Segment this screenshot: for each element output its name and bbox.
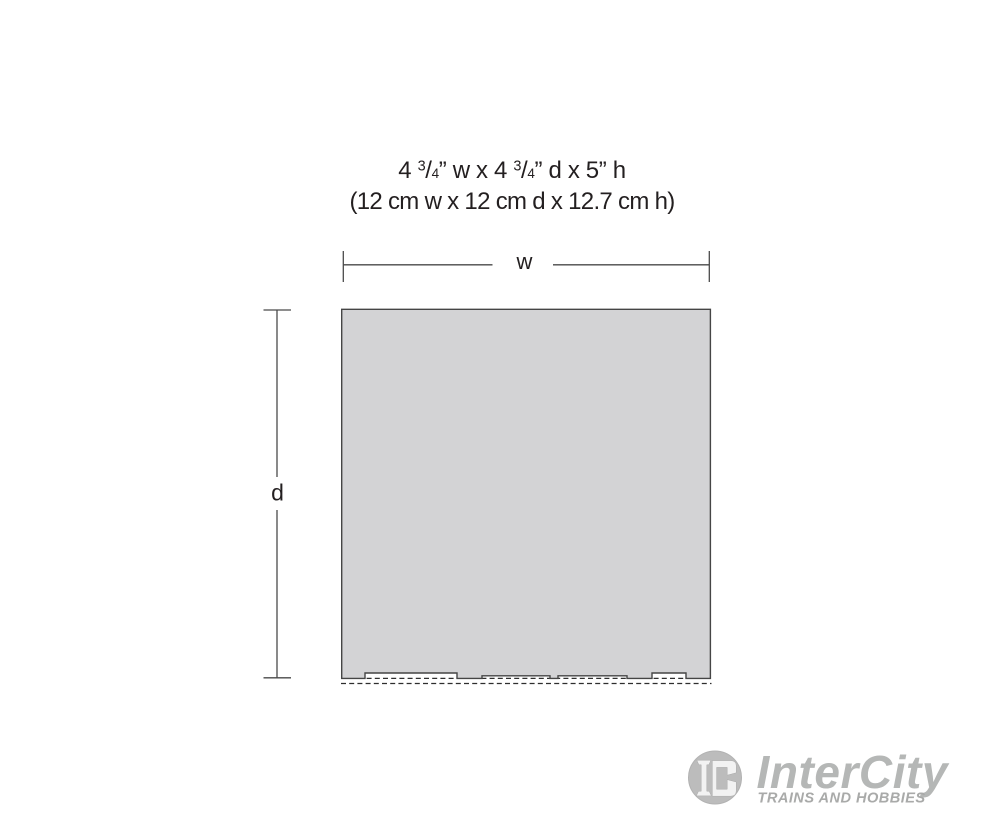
svg-text:(12 cm w x 12 cm d x 12.7 cm h: (12 cm w x 12 cm d x 12.7 cm h) xyxy=(349,188,674,215)
svg-text:w: w xyxy=(516,249,533,274)
svg-text:TRAINS AND HOBBIES: TRAINS AND HOBBIES xyxy=(758,791,926,807)
svg-text:d: d xyxy=(271,480,284,506)
svg-text:4 3/4” w x 4 3/4” d x 5” h: 4 3/4” w x 4 3/4” d x 5” h xyxy=(398,157,626,184)
